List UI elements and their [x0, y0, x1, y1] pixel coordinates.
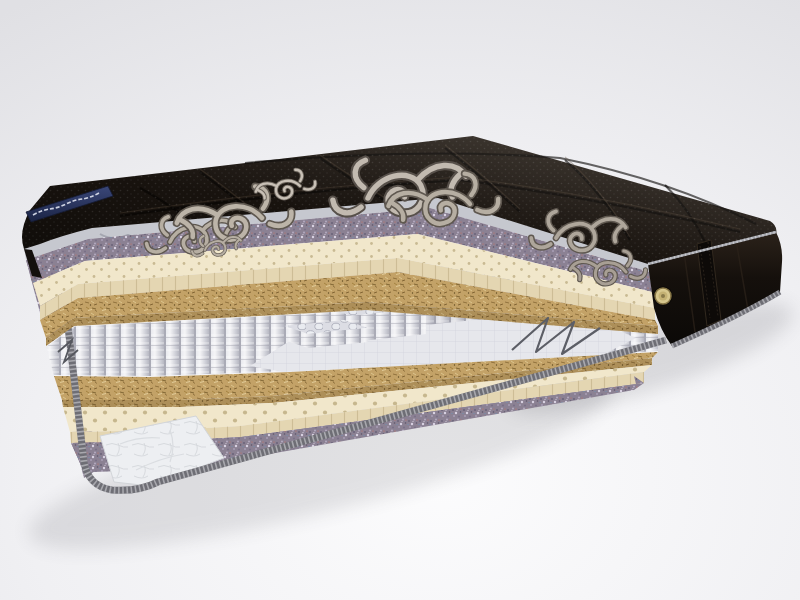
product-image: [0, 0, 800, 600]
air-vent: [654, 287, 673, 306]
mattress-cutaway-render: [0, 0, 800, 600]
